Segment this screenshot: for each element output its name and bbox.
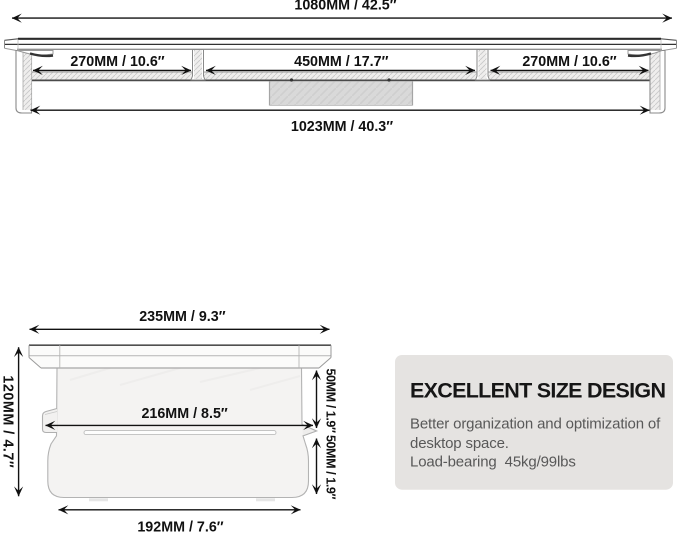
- svg-text:216MM / 8.5″: 216MM / 8.5″: [141, 406, 227, 422]
- svg-text:Load-bearing 45kg/99lbs: Load-bearing 45kg/99lbs: [410, 454, 576, 471]
- svg-text:EXCELLENT SIZE DESIGN: EXCELLENT SIZE DESIGN: [410, 378, 665, 402]
- svg-text:192MM / 7.6″: 192MM / 7.6″: [137, 519, 223, 533]
- svg-text:120MM / 4.7″: 120MM / 4.7″: [0, 375, 15, 468]
- svg-text:1023MM / 40.3″: 1023MM / 40.3″: [291, 119, 393, 135]
- svg-text:50MM / 1.9″: 50MM / 1.9″: [323, 368, 337, 432]
- svg-text:Better organization and optimi: Better organization and optimization of: [410, 416, 661, 433]
- svg-text:50MM / 1.9″: 50MM / 1.9″: [323, 435, 337, 499]
- svg-text:desktop space.: desktop space.: [410, 435, 509, 452]
- svg-text:450MM / 17.7″: 450MM / 17.7″: [294, 54, 388, 70]
- svg-text:270MM / 10.6″: 270MM / 10.6″: [70, 54, 164, 70]
- svg-text:235MM / 9.3″: 235MM / 9.3″: [139, 309, 225, 325]
- svg-text:1080MM / 42.5″: 1080MM / 42.5″: [294, 0, 396, 14]
- svg-text:270MM / 10.6″: 270MM / 10.6″: [522, 54, 616, 70]
